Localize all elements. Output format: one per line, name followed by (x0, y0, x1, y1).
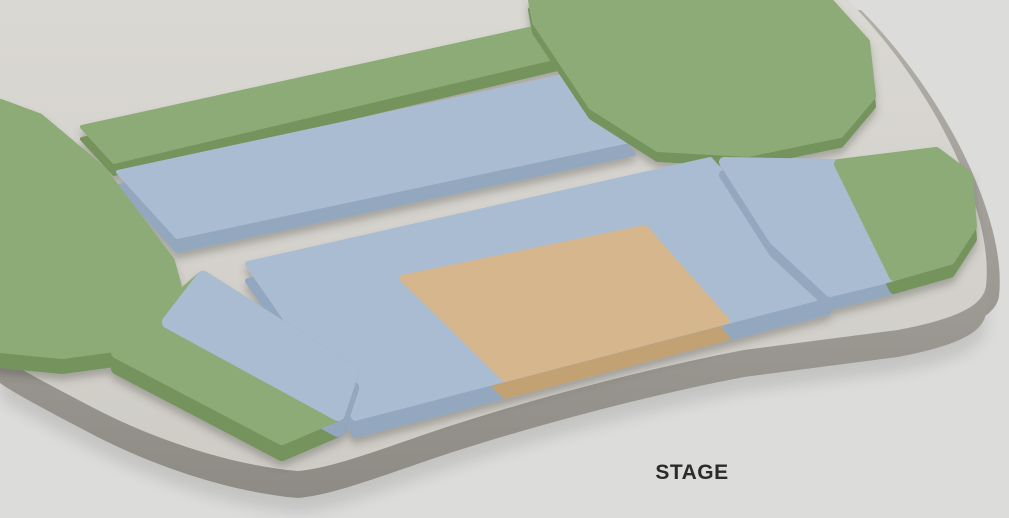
seatmap-svg (0, 0, 1009, 518)
stage-label: STAGE (647, 461, 737, 485)
seatmap-page: STAGE (0, 0, 1009, 518)
